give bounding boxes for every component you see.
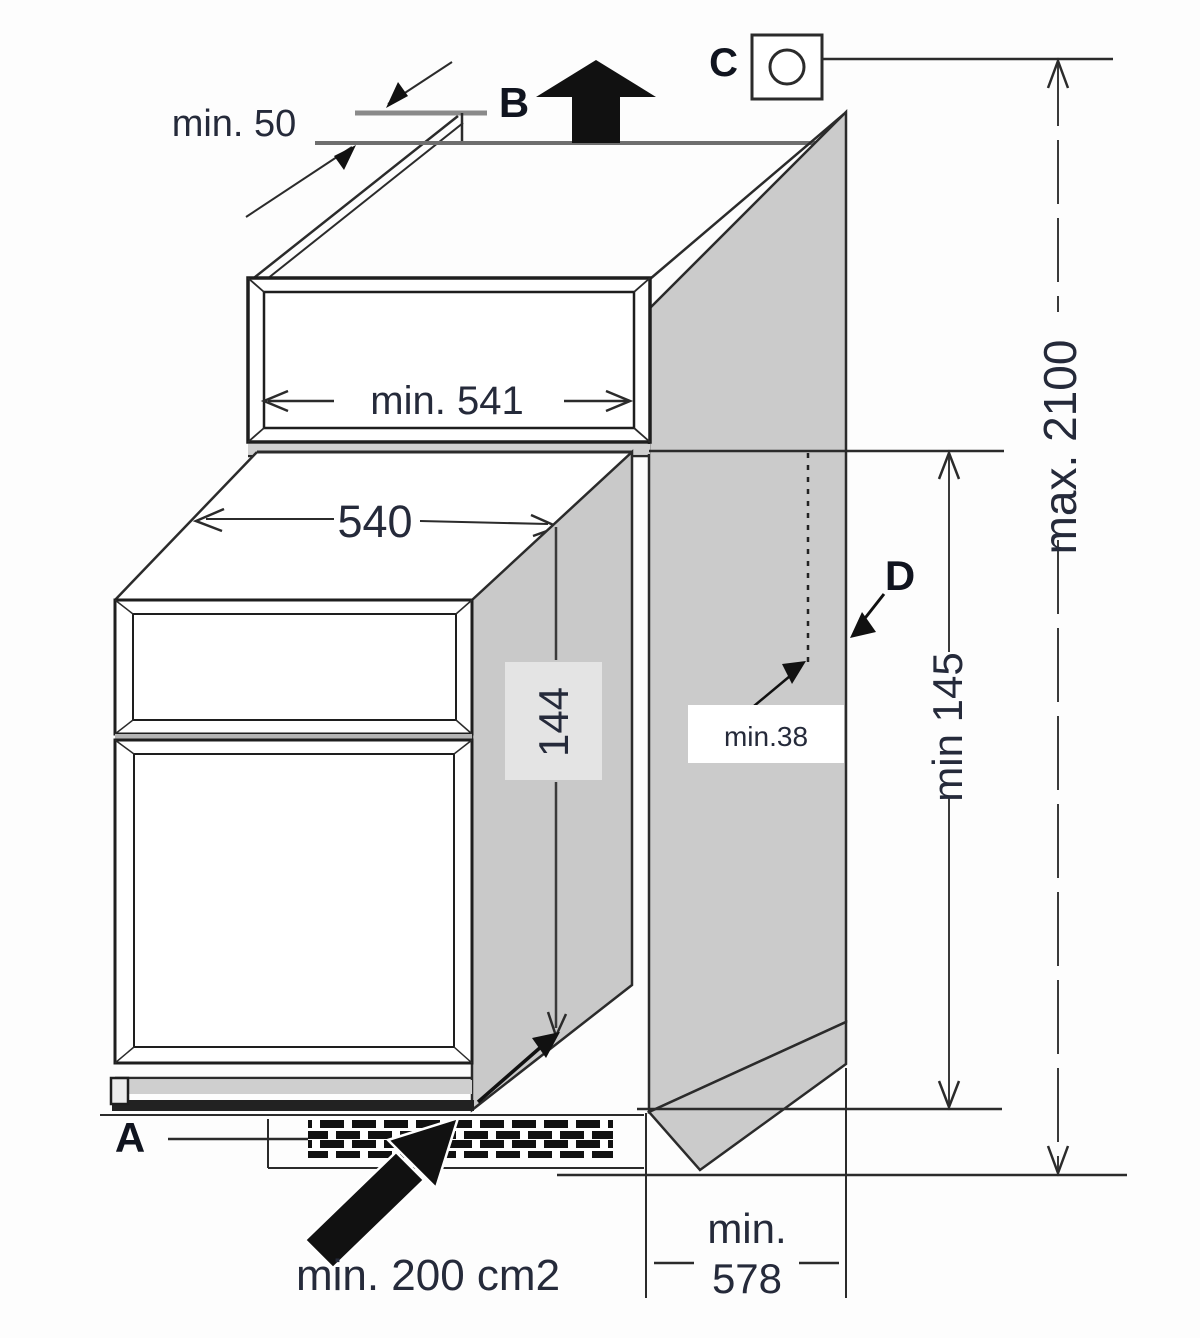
installation-diagram: min. 50 B C min. 541 bbox=[0, 0, 1200, 1338]
callout-b-label: B bbox=[499, 79, 529, 126]
upper-door-panel bbox=[133, 614, 456, 720]
side-panel bbox=[649, 112, 846, 1170]
dim-top-gap-label: min. 50 bbox=[172, 103, 297, 145]
dim-panel-clearance-label: min.38 bbox=[724, 721, 808, 752]
callout-a-label: A bbox=[115, 1114, 145, 1161]
callout-c-label: C bbox=[709, 41, 738, 85]
dim-appliance-width-label: 540 bbox=[337, 496, 412, 547]
side-panel-face bbox=[649, 112, 846, 1112]
arrow-head bbox=[536, 60, 656, 97]
lower-door-panel bbox=[134, 754, 454, 1047]
plinth-area: A bbox=[100, 1114, 644, 1168]
arrow-stem bbox=[572, 95, 620, 143]
arrowhead bbox=[850, 612, 876, 638]
diagram-svg: min. 50 B C min. 541 bbox=[0, 0, 1200, 1338]
bottom-edge bbox=[112, 1100, 474, 1111]
dim-bottom-clearance-label: min 145 bbox=[924, 652, 971, 801]
air-out-arrow-icon bbox=[536, 60, 656, 143]
socket-icon bbox=[752, 35, 822, 99]
arrowhead bbox=[334, 145, 356, 170]
dim-total-height-label: max. 2100 bbox=[1034, 340, 1086, 555]
arrowhead bbox=[386, 82, 408, 108]
vent-grille bbox=[308, 1119, 613, 1158]
dim-depth-value-label: 578 bbox=[712, 1255, 782, 1302]
dim-depth-min-label: min. bbox=[707, 1205, 786, 1252]
dim-vent-area-label: min. 200 cm2 bbox=[296, 1251, 560, 1300]
socket-box bbox=[752, 35, 822, 99]
roof-front-edge-inner bbox=[257, 123, 463, 287]
base-band bbox=[115, 1080, 472, 1094]
dim-recess-height-label: 144 bbox=[530, 687, 577, 757]
dim-niche-width-label: min. 541 bbox=[370, 379, 523, 423]
appliance-front bbox=[111, 600, 474, 1111]
appliance-foot bbox=[111, 1078, 128, 1104]
callout-d: D bbox=[850, 552, 915, 638]
niche-box: min. 541 bbox=[248, 278, 650, 456]
dim-top-gap: min. 50 bbox=[172, 62, 452, 217]
callout-d-label: D bbox=[885, 552, 915, 599]
